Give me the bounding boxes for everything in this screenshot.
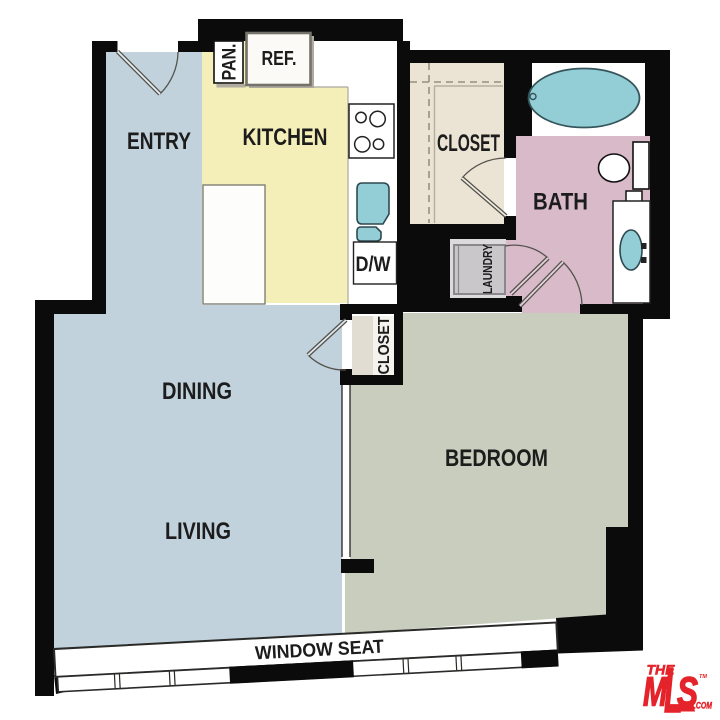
svg-text:D/W: D/W [356,253,391,276]
svg-text:PAN.: PAN. [220,44,241,81]
svg-text:LAUNDRY: LAUNDRY [481,243,495,294]
svg-text:KITCHEN: KITCHEN [243,124,328,151]
svg-text:.COM: .COM [694,701,712,711]
svg-text:LIVING: LIVING [165,518,231,545]
svg-text:BEDROOM: BEDROOM [445,445,548,472]
svg-text:BATH: BATH [533,189,588,216]
svg-text:CLOSET: CLOSET [437,130,500,157]
svg-text:DINING: DINING [162,378,232,405]
svg-text:TM: TM [699,674,707,680]
svg-text:ENTRY: ENTRY [127,128,191,155]
svg-text:REF.: REF. [262,48,297,70]
svg-text:CLOSET: CLOSET [376,316,393,374]
